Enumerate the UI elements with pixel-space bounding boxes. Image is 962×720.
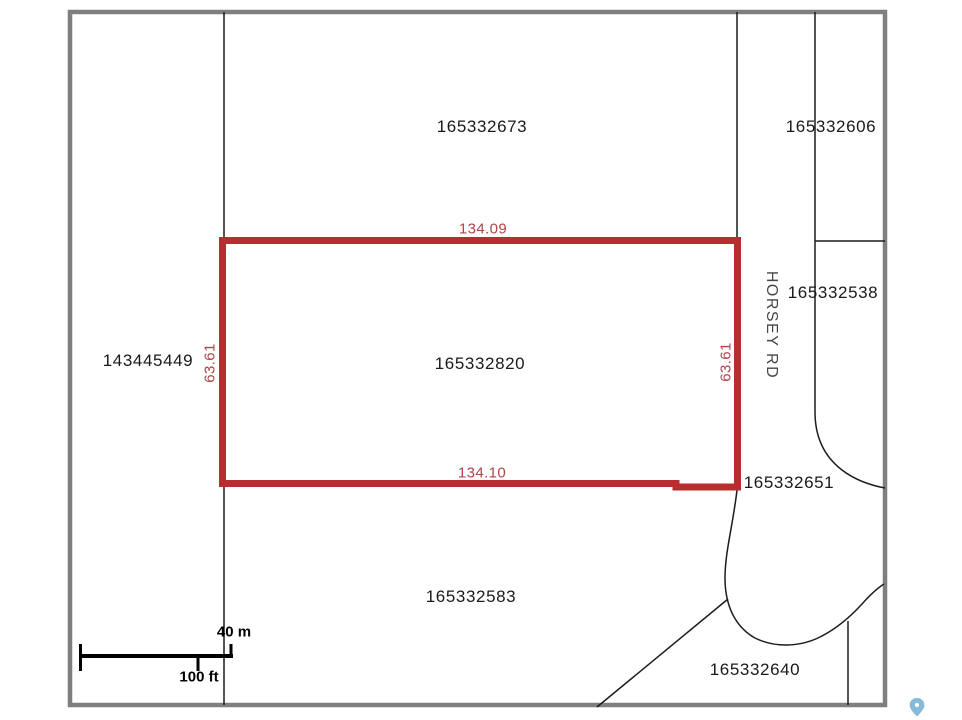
location-pin-icon[interactable]	[910, 698, 925, 716]
parcel-label-143445449: 143445449	[103, 351, 194, 371]
scale-metric-label: 40 m	[217, 624, 251, 641]
location-pin-body	[910, 698, 925, 716]
boundary-line-road-east	[815, 12, 885, 488]
dimension-top: 134.09	[459, 221, 507, 238]
parcel-label-165332651: 165332651	[744, 473, 835, 493]
parcel-label-165332673: 165332673	[437, 117, 528, 137]
boundary-line-southeast-diagonal	[597, 599, 728, 707]
dimension-left: 63.61	[202, 343, 219, 383]
parcel-label-165332538: 165332538	[788, 283, 879, 303]
dimension-bottom: 134.10	[458, 465, 506, 482]
parcel-label-165332640: 165332640	[710, 660, 801, 680]
cul-de-sac-curve	[725, 490, 884, 645]
location-pin-hole	[915, 703, 919, 707]
parcel-label-165332583: 165332583	[426, 587, 517, 607]
dimension-right: 63.61	[718, 342, 735, 382]
parcel-label-165332820: 165332820	[435, 354, 526, 374]
scale-bar	[79, 644, 233, 671]
scale-imperial-label: 100 ft	[179, 669, 218, 686]
parcel-label-165332606: 165332606	[786, 117, 877, 137]
map-canvas[interactable]: 165332673 165332606 165332538 143445449 …	[0, 0, 962, 720]
road-label-horsey-rd: HORSEY RD	[762, 271, 780, 379]
